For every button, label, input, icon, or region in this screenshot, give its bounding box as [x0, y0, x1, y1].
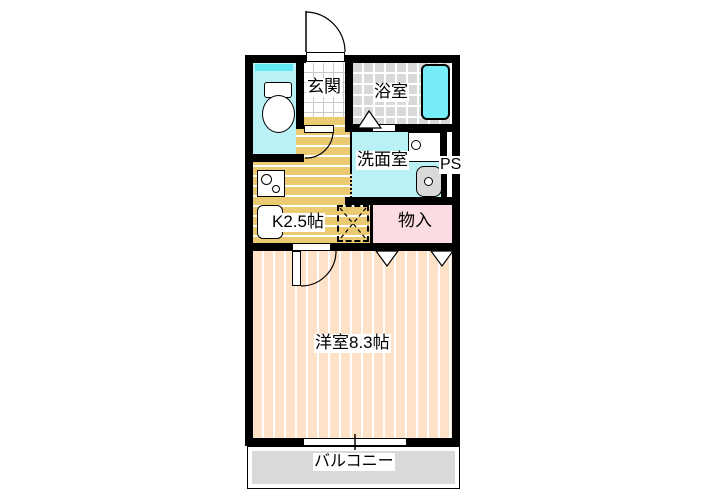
- washbasin-drain-icon: [424, 177, 433, 186]
- bathtub: [421, 64, 450, 120]
- outer-wall-bottom-right: [407, 438, 460, 446]
- kitchen-label: K2.5帖: [271, 213, 325, 232]
- toilet-bottom-wall: [245, 154, 304, 162]
- bathroom-label: 浴室: [373, 83, 409, 102]
- washroom-left-wall: [350, 132, 352, 172]
- genkan-bathroom-wall: [345, 55, 353, 132]
- washroom-open-doorway-dotted-line: [350, 172, 352, 198]
- toilet-door-leaf: [304, 125, 334, 133]
- closet-left-wall: [370, 205, 373, 243]
- room-door-opening: [292, 243, 331, 251]
- stove-burner-small-icon: [272, 185, 280, 193]
- stove: [257, 170, 285, 197]
- balcony-window: [303, 438, 407, 446]
- washing-machine-drain-icon: [411, 140, 421, 150]
- room-top-wall-right: [331, 243, 460, 251]
- entrance-door-arc: [306, 12, 345, 52]
- entrance-threshold: [306, 52, 345, 62]
- ps-label: PS: [439, 156, 462, 174]
- closet-label: 物入: [397, 212, 433, 231]
- floor-plan: 玄関 浴室 洗面室 PS K2.5帖 物入 洋室8.3帖 バルコニー: [0, 0, 710, 500]
- washroom-bottom-wall: [345, 197, 452, 205]
- room-door-leaf: [292, 251, 301, 286]
- main-room-label: 洋室8.3帖: [314, 334, 391, 353]
- outer-wall-bottom-left: [245, 438, 303, 446]
- balcony-label: バルコニー: [313, 453, 395, 471]
- stove-burner-large-icon: [261, 174, 272, 185]
- toilet-bowl: [262, 95, 295, 133]
- room-top-wall-left: [245, 243, 292, 251]
- toilet-right-wall: [296, 63, 304, 129]
- toilet-window: [255, 64, 293, 71]
- bathroom-door-opening: [372, 124, 396, 132]
- outer-wall-top-right: [345, 55, 460, 63]
- refrigerator-space: [337, 205, 369, 242]
- outer-wall-top-left: [245, 55, 306, 63]
- washroom-label: 洗面室: [356, 151, 409, 170]
- bathroom-bottom-wall-left: [345, 124, 372, 132]
- genkan-label: 玄関: [306, 78, 342, 97]
